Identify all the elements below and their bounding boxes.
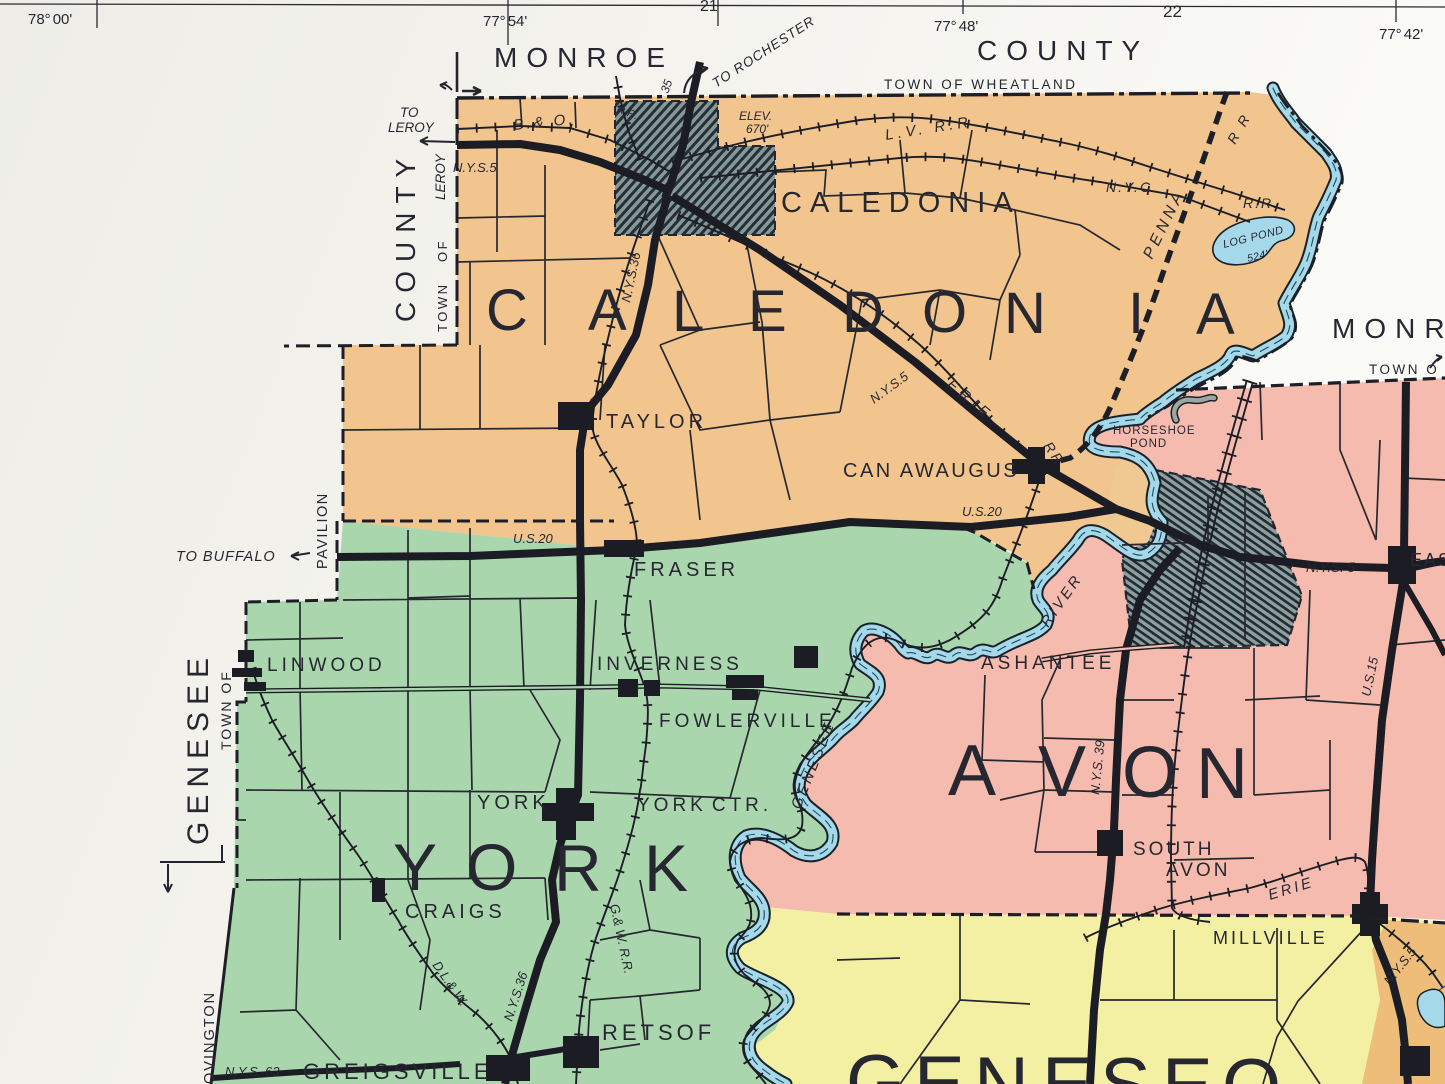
svg-text:INVERNESS: INVERNESS <box>597 654 743 675</box>
svg-text:R.R.: R.R. <box>1243 195 1279 211</box>
svg-text:MONROE: MONROE <box>1332 313 1445 344</box>
svg-text:CANAWAUGUS: CANAWAUGUS <box>843 460 1019 482</box>
svg-text:TO: TO <box>400 105 419 120</box>
svg-text:TOWN: TOWN <box>435 283 450 332</box>
svg-text:D: D <box>842 280 884 345</box>
svg-text:E: E <box>1162 1043 1213 1084</box>
svg-text:TAYLOR: TAYLOR <box>606 411 707 433</box>
svg-text:EAS: EAS <box>1410 550 1445 570</box>
svg-text:ELEV.: ELEV. <box>739 109 772 123</box>
svg-text:SOUTH: SOUTH <box>1133 839 1215 860</box>
svg-text:R: R <box>554 831 602 905</box>
svg-text:77°42': 77°42' <box>1379 26 1423 43</box>
svg-text:E: E <box>1042 1042 1093 1084</box>
svg-text:A: A <box>1196 282 1235 347</box>
svg-text:O: O <box>466 830 517 904</box>
svg-text:COUNTY: COUNTY <box>390 150 421 322</box>
svg-text:GENESEE: GENESEE <box>182 651 215 845</box>
svg-text:22: 22 <box>1163 2 1182 21</box>
svg-text:CRAIGS: CRAIGS <box>405 901 506 923</box>
svg-text:U.S.20: U.S.20 <box>513 531 554 546</box>
svg-text:670': 670' <box>746 122 769 136</box>
svg-text:C: C <box>486 278 528 343</box>
svg-text:AVON: AVON <box>1166 860 1230 881</box>
svg-text:FRASER: FRASER <box>634 559 739 581</box>
svg-text:MONROE: MONROE <box>494 42 674 73</box>
svg-text:POND: POND <box>1130 438 1167 450</box>
svg-text:V: V <box>1038 732 1086 812</box>
svg-text:L: L <box>672 279 704 344</box>
svg-text:HORSESHOE: HORSESHOE <box>1113 425 1196 437</box>
svg-text:78°00': 78°00' <box>28 11 72 28</box>
svg-text:LEROY: LEROY <box>433 153 448 200</box>
svg-text:O: O <box>922 280 967 345</box>
svg-text:N: N <box>1196 734 1248 814</box>
svg-text:21: 21 <box>700 0 718 15</box>
svg-text:O: O <box>1222 1044 1281 1084</box>
svg-text:N: N <box>1004 281 1046 346</box>
svg-text:N.Y.S.5: N.Y.S.5 <box>453 160 497 175</box>
svg-text:LEROY: LEROY <box>388 120 435 135</box>
svg-text:Y: Y <box>393 830 437 904</box>
svg-text:77°48': 77°48' <box>934 18 978 35</box>
svg-text:I: I <box>1128 281 1144 346</box>
svg-text:N: N <box>974 1042 1029 1084</box>
svg-text:FOWLERVILLE: FOWLERVILLE <box>659 711 836 732</box>
svg-text:77°54': 77°54' <box>483 13 527 30</box>
svg-text:COUNTY: COUNTY <box>977 35 1149 66</box>
svg-text:TOWN OF: TOWN OF <box>218 670 234 750</box>
svg-text:K: K <box>644 831 688 905</box>
svg-text:CALEDONIA: CALEDONIA <box>781 187 1021 219</box>
svg-text:OF: OF <box>435 239 450 262</box>
svg-text:A: A <box>948 731 996 811</box>
svg-text:U.S.20: U.S.20 <box>962 504 1003 519</box>
svg-text:N.Y.S. 63: N.Y.S. 63 <box>225 1064 280 1079</box>
svg-text:N.Y.C.: N.Y.C. <box>1106 179 1158 195</box>
svg-text:TOWN OF WHEATLAND: TOWN OF WHEATLAND <box>884 77 1078 92</box>
svg-text:G: G <box>846 1040 905 1084</box>
svg-text:N.Y.S. 5: N.Y.S. 5 <box>1306 560 1356 575</box>
svg-text:PAVILION: PAVILION <box>315 492 331 569</box>
svg-text:YORKCTR.: YORKCTR. <box>637 795 772 816</box>
svg-text:OVINGTON: OVINGTON <box>202 991 218 1084</box>
svg-text:MILLVILLE: MILLVILLE <box>1213 928 1328 948</box>
svg-text:RETSOF: RETSOF <box>602 1020 715 1045</box>
svg-text:O: O <box>1122 733 1178 813</box>
svg-text:ASHANTEE: ASHANTEE <box>981 653 1115 674</box>
svg-text:TOWN O: TOWN O <box>1369 362 1439 377</box>
svg-text:GREIGSVILLE: GREIGSVILLE <box>303 1059 493 1084</box>
svg-text:S: S <box>1100 1043 1151 1084</box>
svg-text:YORK: YORK <box>477 792 550 814</box>
svg-text:TO BUFFALO: TO BUFFALO <box>176 549 276 565</box>
svg-text:LINWOOD: LINWOOD <box>267 655 386 676</box>
svg-text:E: E <box>914 1041 965 1084</box>
svg-text:E: E <box>748 279 787 344</box>
